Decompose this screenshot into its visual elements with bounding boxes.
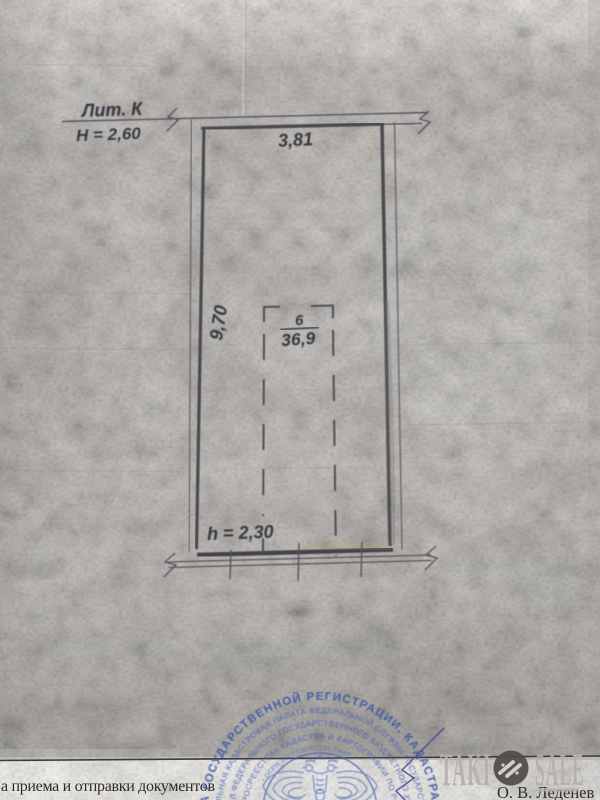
svg-text:h = 2,30: h = 2,30 bbox=[207, 522, 274, 544]
svg-text:Н = 2,60: Н = 2,60 bbox=[76, 124, 142, 145]
svg-text:TAKI: TAKI bbox=[440, 743, 491, 796]
svg-text:а приема и отправки документов: а приема и отправки документов bbox=[1, 778, 215, 795]
svg-text:Лит. К: Лит. К bbox=[80, 99, 145, 121]
svg-text:3,81: 3,81 bbox=[278, 129, 314, 151]
svg-text:6: 6 bbox=[295, 312, 305, 329]
svg-text:SALE: SALE bbox=[535, 743, 585, 796]
svg-text:36,9: 36,9 bbox=[280, 328, 316, 350]
